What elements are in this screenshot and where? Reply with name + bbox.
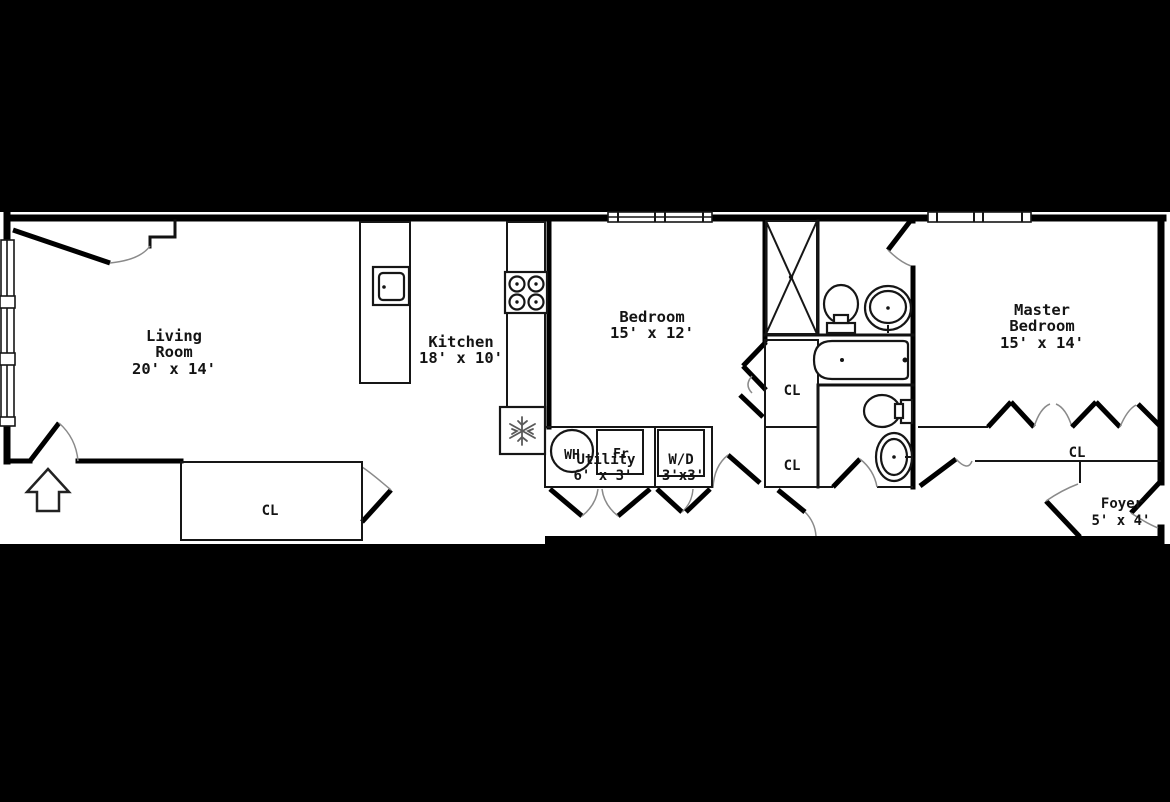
living-room-dims: 20' x 14' [132,360,216,378]
kitchen-dims: 18' x 10' [419,349,503,367]
wd-label: W/D [668,452,693,468]
ensuite-toilet-icon [824,285,858,333]
living-closet-label: CL [262,503,279,519]
utility-dims: 6' x 3' [573,468,632,484]
upper-hall-closet-label: CL [784,383,801,399]
plan-canvas [0,212,1170,544]
floor-plan-image: Living Room 20' x 14' Kitchen 18' x 10' … [0,0,1170,802]
small-fridge-label: Fr [613,447,629,462]
hall-sink-icon [876,433,913,481]
bedroom-window-icon [608,212,712,222]
master-closet-label: CL [1069,445,1086,461]
master-bedroom-label2: Bedroom [1009,317,1074,335]
bathtub-icon [814,341,908,379]
kitchen-island-sink-icon [373,267,409,305]
foyer-label: Foyer [1101,496,1143,512]
foyer-dims: 5' x 4' [1091,513,1150,529]
living-room-label2: Room [155,343,192,361]
master-bedroom-dims: 15' x 14' [1000,334,1084,352]
floor-plan-svg: Living Room 20' x 14' Kitchen 18' x 10' … [0,0,1170,802]
fridge-snowflake-icon [500,407,545,454]
living-room-window-icon [0,240,15,426]
water-heater-label: WH [564,448,580,463]
stove-icon [505,272,547,313]
wd-dims: 3'x3' [662,468,704,484]
lower-hall-closet-label: CL [784,458,801,474]
hall-toilet-icon [864,395,912,427]
master-bedroom-window-icon [928,212,1031,222]
bedroom-dims: 15' x 12' [610,324,694,342]
